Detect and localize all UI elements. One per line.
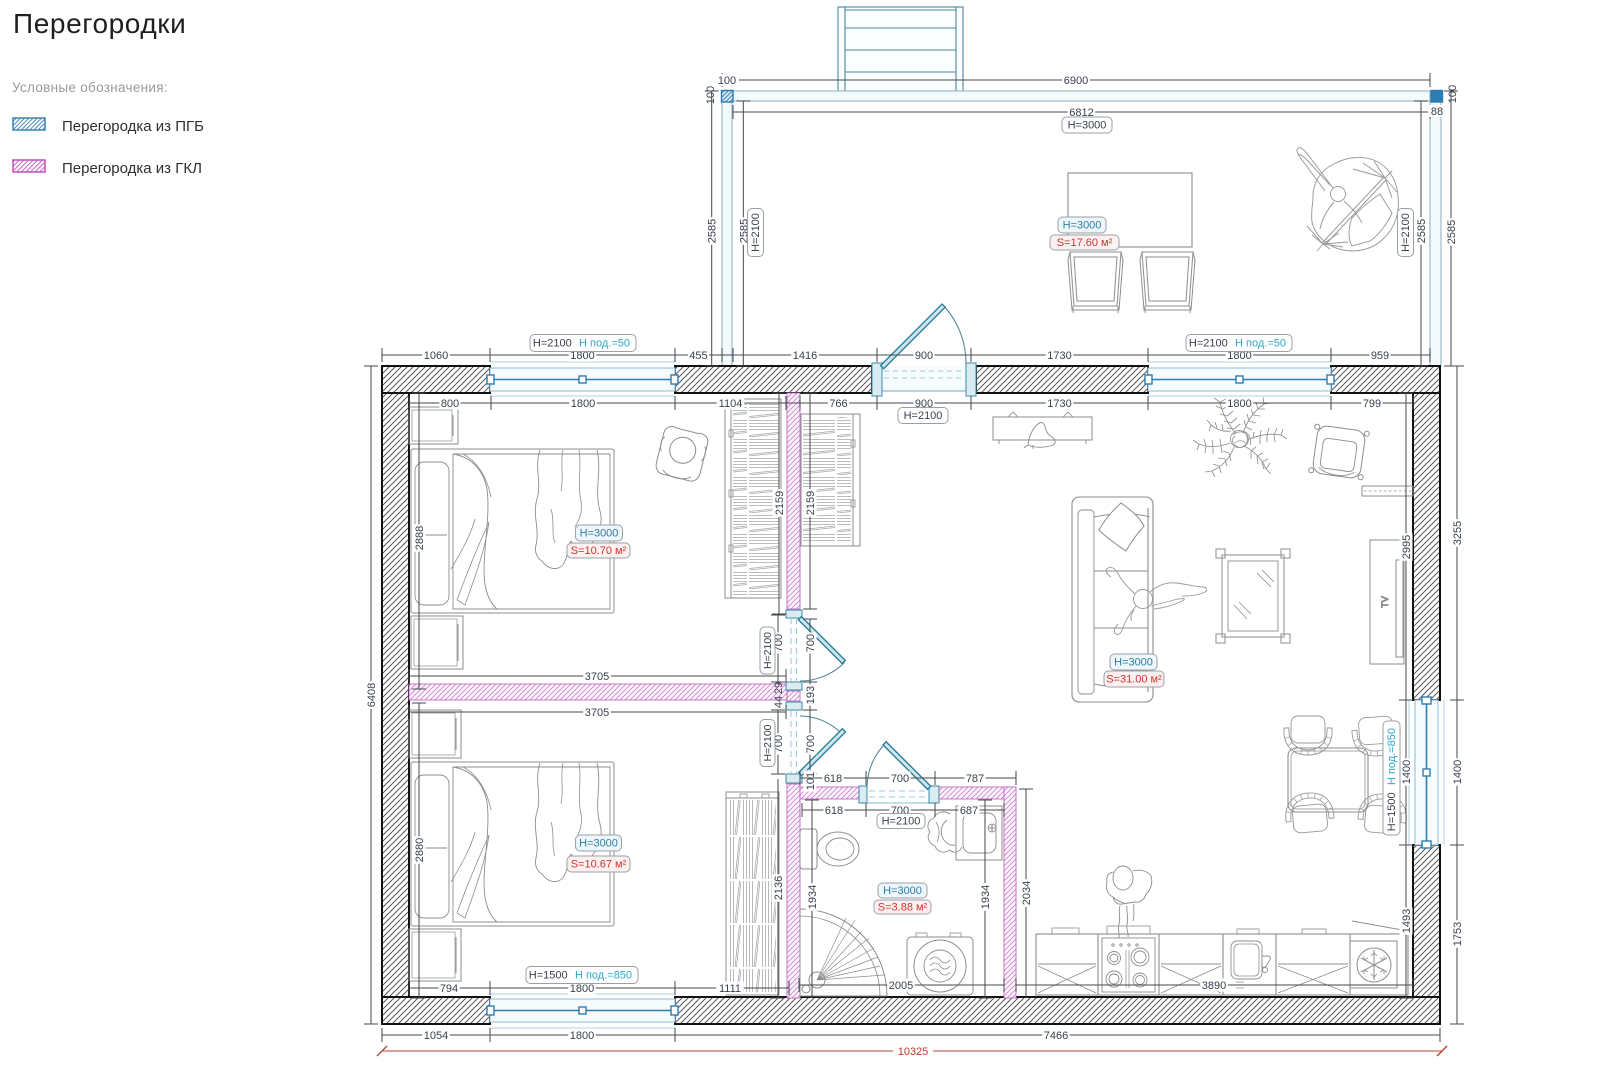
svg-text:2995: 2995 — [1401, 535, 1413, 559]
svg-text:799: 799 — [1363, 398, 1381, 410]
svg-text:1934: 1934 — [980, 885, 992, 909]
svg-text:Условные обозначения:: Условные обозначения: — [12, 80, 168, 95]
svg-text:H=2100: H=2100 — [882, 816, 921, 828]
svg-text:S=31.00 м²: S=31.00 м² — [1106, 674, 1162, 686]
svg-text:2585: 2585 — [1416, 219, 1428, 243]
svg-text:1800: 1800 — [570, 983, 594, 995]
svg-text:2585: 2585 — [1446, 220, 1458, 244]
svg-text:H=3000: H=3000 — [883, 885, 922, 897]
svg-text:618: 618 — [825, 805, 843, 817]
svg-text:H=2100: H=2100 — [904, 410, 943, 422]
svg-text:S=17.60 м²: S=17.60 м² — [1057, 237, 1113, 249]
svg-text:H=2100: H=2100 — [1189, 338, 1228, 350]
svg-text:1493: 1493 — [1401, 909, 1413, 933]
svg-text:Н под.=50: Н под.=50 — [579, 338, 630, 350]
svg-text:2585: 2585 — [707, 219, 719, 243]
svg-text:6408: 6408 — [366, 683, 378, 707]
svg-text:2888: 2888 — [414, 526, 426, 550]
svg-text:Перегородка из ГКЛ: Перегородка из ГКЛ — [62, 160, 202, 177]
svg-text:29: 29 — [773, 682, 785, 694]
svg-text:787: 787 — [966, 773, 984, 785]
svg-text:193: 193 — [805, 686, 817, 704]
svg-text:Перегородка из ПГБ: Перегородка из ПГБ — [62, 118, 204, 135]
svg-text:H=3000: H=3000 — [580, 528, 619, 540]
svg-text:88: 88 — [1431, 106, 1443, 118]
svg-text:Н под.=850: Н под.=850 — [1386, 728, 1398, 785]
svg-text:455: 455 — [689, 350, 707, 362]
svg-text:794: 794 — [440, 983, 458, 995]
svg-text:H=2100: H=2100 — [762, 632, 774, 669]
svg-text:2159: 2159 — [805, 491, 817, 515]
svg-text:2034: 2034 — [1021, 881, 1033, 905]
svg-text:3705: 3705 — [585, 707, 609, 719]
svg-text:1753: 1753 — [1452, 922, 1464, 946]
svg-text:H=2100: H=2100 — [1400, 213, 1412, 252]
svg-text:1111: 1111 — [719, 983, 741, 995]
svg-text:2005: 2005 — [889, 980, 913, 992]
svg-text:H=3000: H=3000 — [1114, 657, 1153, 669]
svg-text:2159: 2159 — [774, 491, 786, 515]
svg-text:1800: 1800 — [571, 398, 595, 410]
svg-text:H=1500: H=1500 — [529, 970, 568, 982]
svg-text:2136: 2136 — [773, 876, 785, 900]
svg-text:100: 100 — [1447, 85, 1459, 103]
svg-text:H=2100: H=2100 — [750, 213, 762, 252]
svg-text:S=3.88 м²: S=3.88 м² — [878, 902, 928, 914]
svg-text:100: 100 — [705, 86, 717, 104]
svg-text:H=2100: H=2100 — [533, 338, 572, 350]
svg-text:1400: 1400 — [1452, 760, 1464, 784]
svg-text:H=2100: H=2100 — [762, 724, 774, 761]
svg-text:1800: 1800 — [570, 1030, 594, 1042]
svg-text:7466: 7466 — [1044, 1030, 1068, 1042]
svg-text:1400: 1400 — [1401, 760, 1413, 784]
svg-text:3890: 3890 — [1202, 980, 1226, 992]
svg-text:1104: 1104 — [719, 398, 743, 410]
svg-text:S=10.67 м²: S=10.67 м² — [571, 859, 627, 871]
svg-text:6900: 6900 — [1064, 75, 1088, 87]
svg-text:100: 100 — [718, 75, 736, 87]
svg-text:1416: 1416 — [793, 350, 817, 362]
svg-text:700: 700 — [891, 773, 909, 785]
svg-text:1054: 1054 — [424, 1030, 448, 1042]
svg-text:900: 900 — [915, 350, 933, 362]
svg-text:618: 618 — [824, 773, 842, 785]
svg-text:800: 800 — [441, 398, 459, 410]
svg-text:H=3000: H=3000 — [1063, 220, 1102, 232]
svg-text:H=1500: H=1500 — [1386, 792, 1398, 831]
svg-text:3255: 3255 — [1452, 521, 1464, 545]
svg-text:1934: 1934 — [807, 885, 819, 909]
svg-text:3705: 3705 — [585, 671, 609, 683]
svg-text:TV: TV — [1380, 596, 1390, 608]
svg-text:10325: 10325 — [898, 1046, 929, 1058]
svg-text:101: 101 — [805, 772, 817, 790]
svg-text:1800: 1800 — [1227, 398, 1251, 410]
svg-text:766: 766 — [829, 398, 847, 410]
svg-text:700: 700 — [805, 634, 817, 652]
svg-text:1730: 1730 — [1047, 350, 1071, 362]
svg-text:44: 44 — [773, 696, 785, 708]
svg-text:H=3000: H=3000 — [1068, 120, 1107, 132]
svg-text:Н под.=50: Н под.=50 — [1235, 338, 1286, 350]
svg-text:Перегородки: Перегородки — [13, 8, 186, 39]
svg-text:S=10.70 м²: S=10.70 м² — [571, 545, 627, 557]
svg-text:687: 687 — [960, 805, 978, 817]
svg-text:H=3000: H=3000 — [579, 838, 618, 850]
svg-text:1730: 1730 — [1047, 398, 1071, 410]
svg-text:1060: 1060 — [424, 350, 448, 362]
svg-text:959: 959 — [1371, 350, 1389, 362]
svg-text:700: 700 — [805, 735, 817, 753]
svg-text:Н под.=850: Н под.=850 — [575, 970, 632, 982]
svg-text:2880: 2880 — [414, 838, 426, 862]
